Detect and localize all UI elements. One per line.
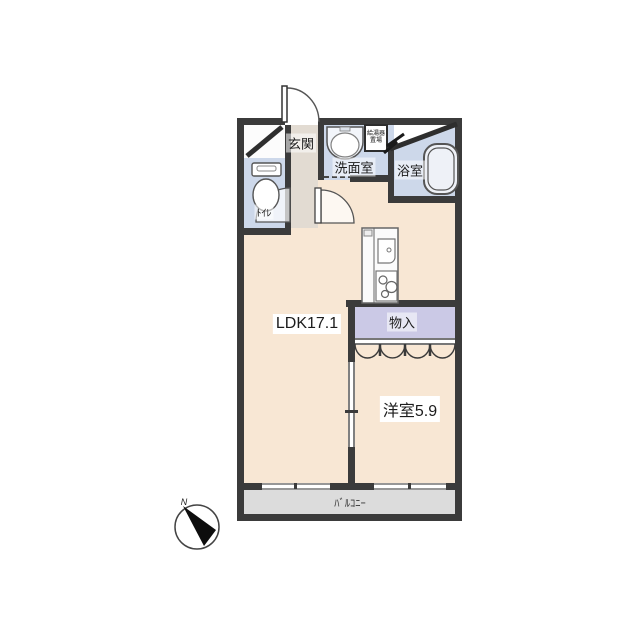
bathroom-label: 浴室 bbox=[395, 161, 425, 180]
western-room-label: 洋室5.9 bbox=[380, 396, 440, 422]
storage-label: 物入 bbox=[387, 313, 417, 332]
kitchen-sink-icon bbox=[378, 239, 395, 263]
compass-n-label: N bbox=[181, 497, 188, 507]
compass-north-icon: N bbox=[175, 497, 219, 549]
bathtub-icon bbox=[424, 144, 458, 194]
balcony-label: ﾊﾞﾙｺﾆｰ bbox=[332, 496, 368, 511]
accordion-door-arcs bbox=[355, 344, 455, 358]
ldk-label: LDK17.1 bbox=[273, 314, 341, 334]
washroom-label: 洗面室 bbox=[332, 158, 375, 177]
floorplan-canvas: 給湯器置場 bbox=[0, 0, 640, 640]
washbasin-icon bbox=[327, 127, 363, 159]
toilet-label: ﾄｲﾚ bbox=[255, 205, 274, 220]
entrance-door bbox=[282, 86, 319, 122]
ldk-door bbox=[315, 188, 354, 223]
kitchen-counter-icon bbox=[362, 228, 398, 303]
shaft-diagonal-wall bbox=[247, 127, 282, 156]
entrance-label: 玄関 bbox=[286, 134, 316, 153]
